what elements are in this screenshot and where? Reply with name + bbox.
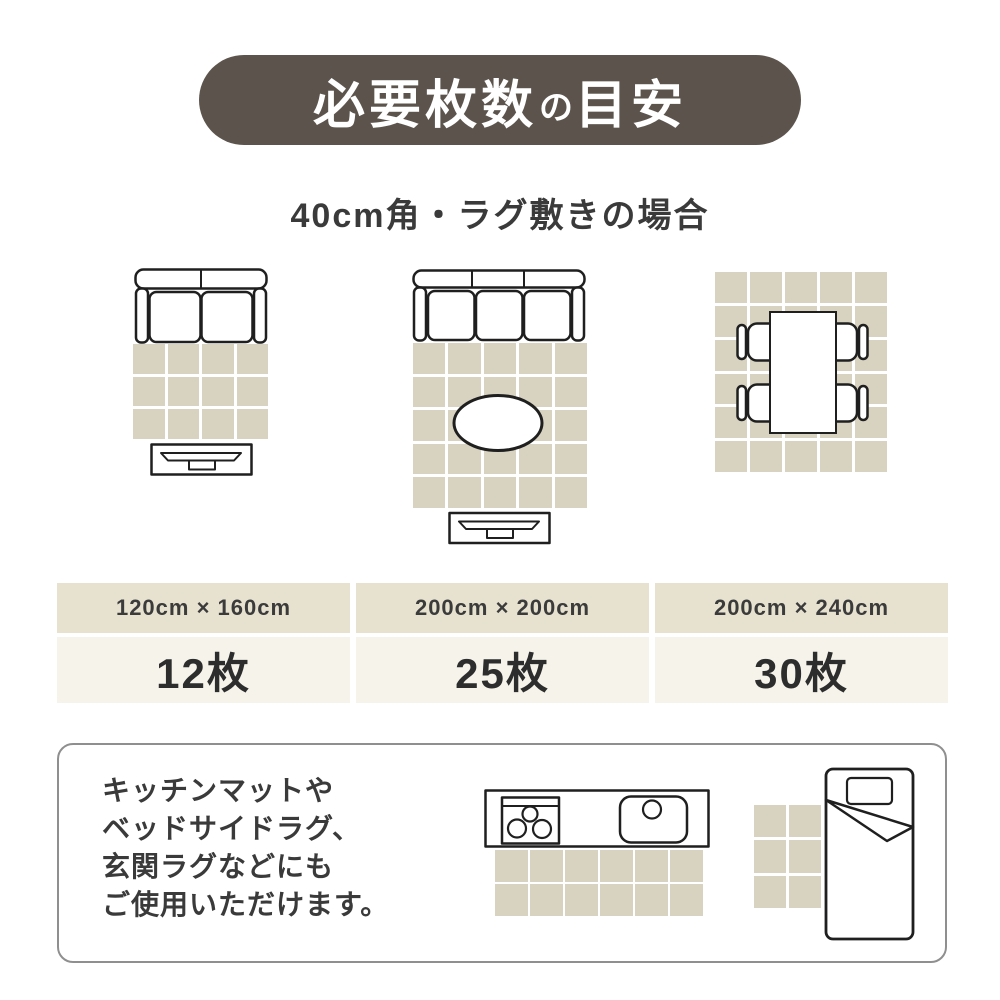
rug-tile [555, 377, 587, 408]
note-line: ご使用いただけます。 [102, 886, 462, 924]
rug-tile [237, 377, 269, 407]
rug-tile [785, 441, 817, 472]
rug-tile [448, 477, 480, 508]
page-title-particle: の [539, 80, 573, 129]
panel-size-label: 200cm × 240cm [655, 583, 948, 633]
rug-tile [789, 876, 821, 908]
kitchen-counter-icon [484, 789, 710, 849]
infographic-page: 必要枚数の目安 40cm角・ラグ敷きの場合 [0, 0, 1000, 1000]
kitchen-mat-grid [495, 850, 703, 916]
rug-tile [202, 344, 234, 374]
panel-size-label: 200cm × 200cm [356, 583, 649, 633]
rug-tile [530, 884, 563, 916]
rug-tile [413, 444, 445, 475]
rug-tile [789, 840, 821, 872]
rug-tile [495, 850, 528, 882]
panel-count-value: 25枚 [356, 637, 649, 703]
rug-tile [168, 409, 200, 439]
rug-tile [448, 343, 480, 374]
usage-note-text: キッチンマットや ベッドサイドラグ、 玄関ラグなどにも ご使用いただけます。 [102, 772, 462, 924]
rug-tile [820, 441, 852, 472]
rug-tile [237, 344, 269, 374]
rug-tile [133, 344, 165, 374]
rug-tile [495, 884, 528, 916]
rug-tile [754, 805, 786, 837]
dining-table-icon [769, 311, 837, 434]
tv-board-icon [150, 443, 253, 476]
tv-board-icon [448, 511, 551, 545]
rug-tile [133, 377, 165, 407]
panel-200x240: 200cm × 240cm 30枚 [655, 583, 948, 703]
rug-tile [202, 409, 234, 439]
rug-tile [715, 272, 747, 303]
rug-tile [785, 272, 817, 303]
rug-tile [519, 343, 551, 374]
subtitle: 40cm角・ラグ敷きの場合 [0, 188, 1000, 237]
rug-tile [413, 410, 445, 441]
note-line: ベッドサイドラグ、 [102, 810, 462, 848]
rug-tile [565, 884, 598, 916]
rug-tile [855, 272, 887, 303]
rug-tile [484, 477, 516, 508]
rug-tile [855, 441, 887, 472]
page-title: 必要枚数の目安 [199, 55, 801, 145]
rug-tile [715, 441, 747, 472]
rug-tile [530, 850, 563, 882]
note-line: キッチンマットや [102, 772, 462, 810]
rug-tile [133, 409, 165, 439]
rug-tile [484, 343, 516, 374]
rug-tile [202, 377, 234, 407]
note-line: 玄関ラグなどにも [102, 848, 462, 886]
rug-tile [555, 444, 587, 475]
rug-tile [413, 377, 445, 408]
rug-tile [555, 410, 587, 441]
rug-tile [413, 343, 445, 374]
sofa-2seat-icon [134, 268, 268, 344]
rug-tile [754, 876, 786, 908]
panel-count-value: 12枚 [57, 637, 350, 703]
rug-tile [565, 850, 598, 882]
bed-icon [824, 767, 915, 941]
rug-tile [789, 805, 821, 837]
panel-size-label: 120cm × 160cm [57, 583, 350, 633]
rug-grid-1 [133, 344, 268, 439]
bedside-rug-grid [754, 805, 821, 908]
rug-tile [168, 344, 200, 374]
rug-tile [750, 441, 782, 472]
rug-tile [820, 272, 852, 303]
rug-tile [413, 477, 445, 508]
rug-tile [555, 343, 587, 374]
rug-tile [750, 272, 782, 303]
rug-tile [635, 884, 668, 916]
rug-tile [519, 477, 551, 508]
panel-200x200: 200cm × 200cm 25枚 [356, 583, 649, 703]
rug-tile [600, 884, 633, 916]
rug-tile [600, 850, 633, 882]
oval-table-icon [451, 393, 545, 453]
rug-tile [670, 850, 703, 882]
sofa-3seat-icon [412, 269, 586, 342]
panel-120x160: 120cm × 160cm 12枚 [57, 583, 350, 703]
rug-tile [168, 377, 200, 407]
panel-count-value: 30枚 [655, 637, 948, 703]
rug-tile [670, 884, 703, 916]
rug-tile [237, 409, 269, 439]
rug-tile [635, 850, 668, 882]
rug-tile [555, 477, 587, 508]
page-title-sub: 目安 [575, 63, 687, 138]
rug-tile [754, 840, 786, 872]
page-title-main: 必要枚数 [313, 63, 537, 138]
